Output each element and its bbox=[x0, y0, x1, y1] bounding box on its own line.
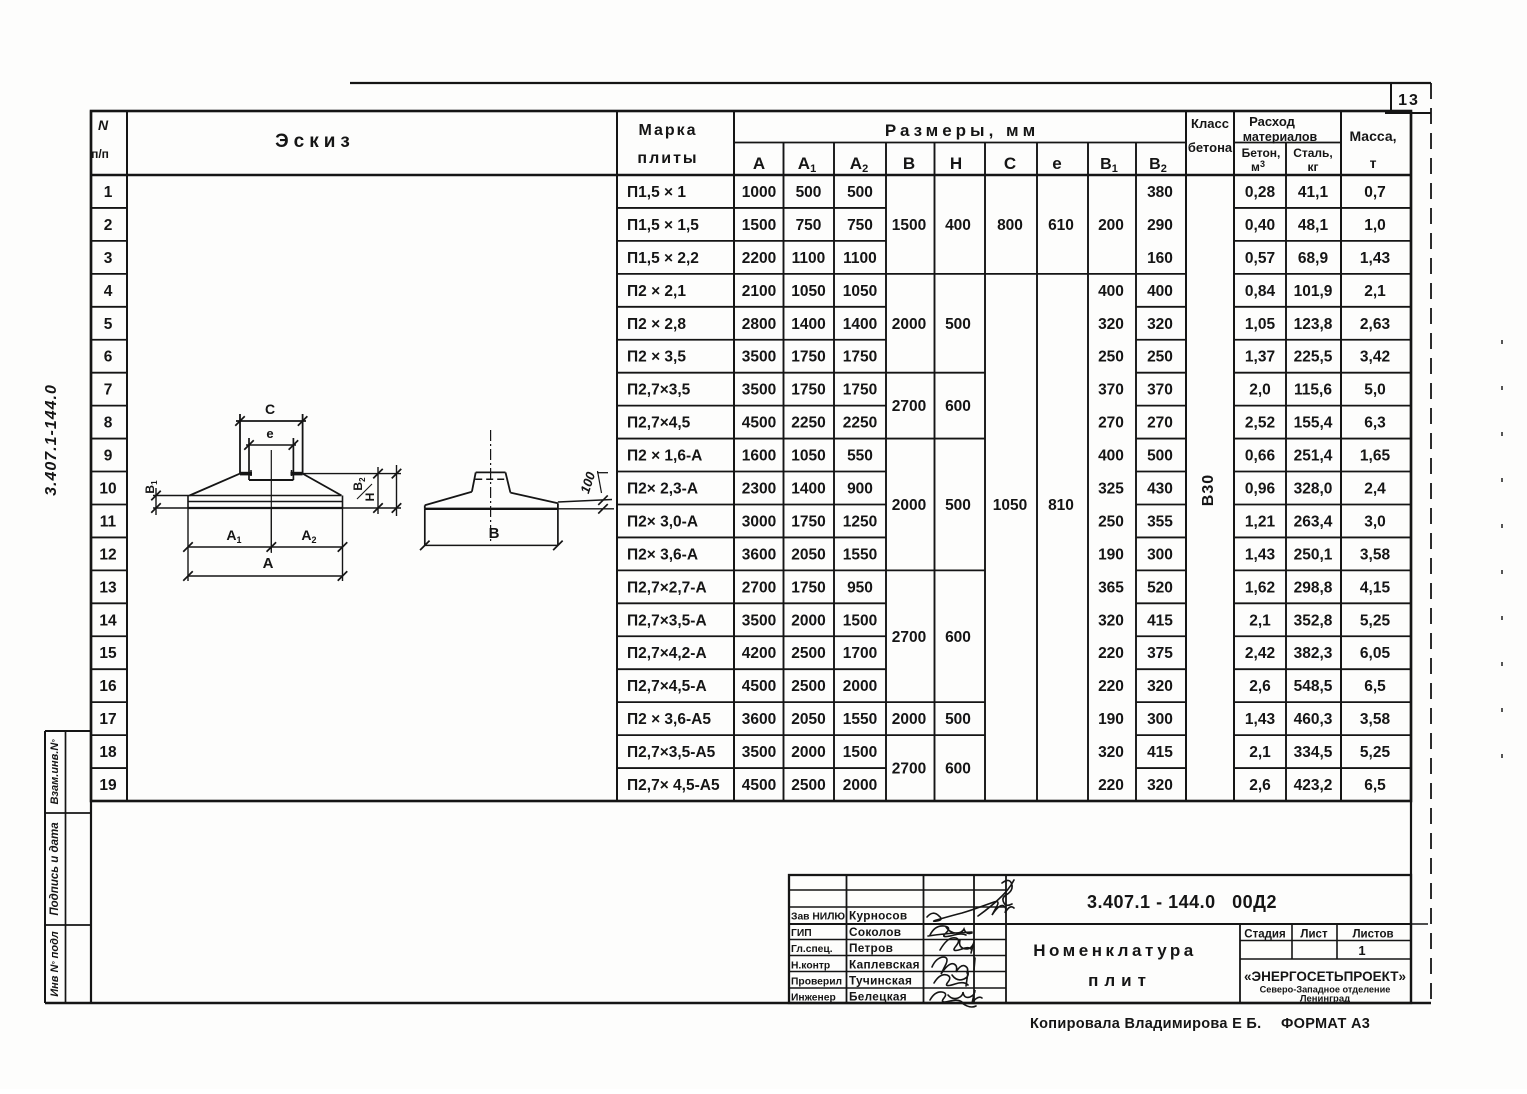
svg-text:П1,5 × 2,2: П1,5 × 2,2 bbox=[627, 250, 699, 267]
svg-text:225,5: 225,5 bbox=[1294, 349, 1333, 366]
svg-text:«ЭНЕРГОСЕТЬПРОЕКТ»: «ЭНЕРГОСЕТЬПРОЕКТ» bbox=[1244, 969, 1406, 984]
svg-text:е: е bbox=[266, 426, 273, 441]
svg-text:2000: 2000 bbox=[843, 777, 877, 794]
svg-text:370: 370 bbox=[1147, 382, 1173, 399]
svg-text:3,42: 3,42 bbox=[1360, 349, 1390, 366]
svg-text:365: 365 bbox=[1098, 579, 1124, 596]
svg-text:3500: 3500 bbox=[742, 612, 776, 629]
svg-text:ФОРМАТ А3: ФОРМАТ А3 bbox=[1281, 1016, 1370, 1032]
svg-text:220: 220 bbox=[1098, 645, 1124, 662]
svg-text:Инв N° подл: Инв N° подл bbox=[49, 931, 61, 997]
svg-text:400: 400 bbox=[1098, 448, 1124, 465]
svg-text:1,62: 1,62 bbox=[1245, 579, 1275, 596]
svg-text:материалов: материалов bbox=[1243, 130, 1318, 144]
svg-text:5,25: 5,25 bbox=[1360, 612, 1391, 629]
svg-text:6,05: 6,05 bbox=[1360, 645, 1391, 662]
svg-text:7: 7 bbox=[104, 382, 113, 399]
svg-text:П2,7×4,2-А: П2,7×4,2-А bbox=[627, 645, 707, 662]
svg-text:300: 300 bbox=[1147, 711, 1173, 728]
svg-text:13: 13 bbox=[99, 579, 117, 596]
svg-text:2000: 2000 bbox=[843, 678, 877, 695]
svg-text:320: 320 bbox=[1147, 678, 1173, 695]
svg-text:2250: 2250 bbox=[843, 415, 877, 432]
svg-text:плиты: плиты bbox=[637, 150, 698, 167]
svg-text:Номенклатура: Номенклатура bbox=[1033, 941, 1197, 960]
svg-text:610: 610 bbox=[1048, 217, 1074, 234]
svg-text:1100: 1100 bbox=[843, 250, 877, 267]
svg-text:С: С bbox=[1004, 154, 1016, 173]
svg-text:3000: 3000 bbox=[742, 513, 776, 530]
svg-text:1750: 1750 bbox=[791, 349, 825, 366]
svg-text:2,4: 2,4 bbox=[1364, 481, 1386, 498]
svg-text:1500: 1500 bbox=[843, 612, 877, 629]
svg-text:4200: 4200 bbox=[742, 645, 776, 662]
svg-text:550: 550 bbox=[847, 448, 873, 465]
svg-text:3500: 3500 bbox=[742, 382, 776, 399]
svg-text:2,6: 2,6 bbox=[1249, 777, 1271, 794]
svg-text:4,15: 4,15 bbox=[1360, 579, 1391, 596]
svg-text:П2× 3,6-А: П2× 3,6-А bbox=[627, 546, 698, 563]
svg-text:С: С bbox=[265, 401, 275, 417]
svg-text:0,7: 0,7 bbox=[1364, 184, 1386, 201]
svg-text:П2,7×2,7-А: П2,7×2,7-А bbox=[627, 579, 707, 596]
svg-text:250: 250 bbox=[1147, 349, 1173, 366]
svg-text:1750: 1750 bbox=[843, 382, 877, 399]
svg-text:1050: 1050 bbox=[791, 448, 825, 465]
svg-text:500: 500 bbox=[945, 497, 971, 514]
svg-text:2000: 2000 bbox=[892, 316, 926, 333]
svg-text:1050: 1050 bbox=[791, 283, 825, 300]
svg-text:300: 300 bbox=[1147, 546, 1173, 563]
svg-text:В: В bbox=[489, 525, 500, 542]
svg-text:500: 500 bbox=[796, 184, 822, 201]
svg-text:2,1: 2,1 bbox=[1249, 744, 1271, 761]
svg-text:2: 2 bbox=[104, 217, 113, 234]
svg-text:1250: 1250 bbox=[843, 513, 877, 530]
svg-text:Курносов: Курносов bbox=[849, 909, 907, 923]
svg-text:1550: 1550 bbox=[843, 711, 877, 728]
svg-text:4500: 4500 bbox=[742, 415, 776, 432]
svg-text:3,58: 3,58 bbox=[1360, 711, 1391, 728]
svg-text:2050: 2050 bbox=[791, 711, 825, 728]
svg-text:2,6: 2,6 bbox=[1249, 678, 1271, 695]
svg-text:Стадия: Стадия bbox=[1244, 929, 1285, 941]
svg-text:4: 4 bbox=[104, 283, 113, 300]
svg-text:16: 16 bbox=[99, 678, 117, 695]
svg-text:Бетон,: Бетон, bbox=[1242, 146, 1281, 160]
svg-text:е: е bbox=[1052, 154, 1061, 173]
svg-text:0,40: 0,40 bbox=[1245, 217, 1275, 234]
svg-text:352,8: 352,8 bbox=[1294, 612, 1333, 629]
svg-text:2250: 2250 bbox=[791, 415, 825, 432]
svg-text:1750: 1750 bbox=[791, 579, 825, 596]
svg-text:П2,7×3,5-А: П2,7×3,5-А bbox=[627, 612, 707, 629]
svg-text:115,6: 115,6 bbox=[1294, 382, 1332, 399]
svg-text:101,9: 101,9 bbox=[1294, 283, 1333, 300]
svg-text:N: N bbox=[98, 117, 109, 133]
svg-text:Размеры, мм: Размеры, мм bbox=[885, 121, 1039, 140]
svg-text:Листов: Листов bbox=[1352, 929, 1393, 941]
svg-text:Зав НИЛЮ: Зав НИЛЮ bbox=[791, 912, 845, 923]
svg-text:220: 220 bbox=[1098, 678, 1124, 695]
svg-text:123,8: 123,8 bbox=[1294, 316, 1333, 333]
svg-text:320: 320 bbox=[1147, 316, 1173, 333]
svg-text:415: 415 bbox=[1147, 612, 1173, 629]
svg-text:270: 270 bbox=[1147, 415, 1173, 432]
svg-text:423,2: 423,2 bbox=[1294, 777, 1333, 794]
svg-text:П2,7×4,5-А: П2,7×4,5-А bbox=[627, 678, 707, 695]
svg-text:900: 900 bbox=[847, 481, 873, 498]
svg-text:370: 370 bbox=[1098, 382, 1124, 399]
svg-text:Эскиз: Эскиз bbox=[275, 131, 355, 152]
svg-text:263,4: 263,4 bbox=[1294, 513, 1333, 530]
svg-text:П2 × 1,6-А: П2 × 1,6-А bbox=[627, 448, 702, 465]
svg-text:Класс: Класс bbox=[1191, 116, 1229, 131]
svg-text:1400: 1400 bbox=[843, 316, 877, 333]
svg-text:2300: 2300 bbox=[742, 481, 776, 498]
svg-text:2,42: 2,42 bbox=[1245, 645, 1275, 662]
svg-text:3,0: 3,0 bbox=[1364, 513, 1386, 530]
svg-text:375: 375 bbox=[1147, 645, 1173, 662]
svg-text:1100: 1100 bbox=[792, 250, 826, 267]
svg-text:2700: 2700 bbox=[892, 761, 926, 778]
svg-text:2,1: 2,1 bbox=[1249, 612, 1271, 629]
svg-text:4500: 4500 bbox=[742, 678, 776, 695]
svg-text:155,4: 155,4 bbox=[1294, 415, 1333, 432]
svg-text:0,96: 0,96 bbox=[1245, 481, 1276, 498]
svg-text:750: 750 bbox=[847, 217, 873, 234]
svg-text:298,8: 298,8 bbox=[1294, 579, 1333, 596]
svg-text:2050: 2050 bbox=[791, 546, 825, 563]
svg-text:2000: 2000 bbox=[892, 497, 926, 514]
svg-text:Н: Н bbox=[363, 493, 377, 502]
svg-text:А: А bbox=[753, 154, 765, 173]
svg-text:2,63: 2,63 bbox=[1360, 316, 1391, 333]
svg-text:14: 14 bbox=[99, 612, 117, 629]
svg-text:6,3: 6,3 bbox=[1364, 415, 1386, 432]
svg-text:500: 500 bbox=[847, 184, 873, 201]
svg-text:3500: 3500 bbox=[742, 744, 776, 761]
svg-text:520: 520 bbox=[1147, 579, 1173, 596]
svg-text:3.407.1 - 144.0 00Д2: 3.407.1 - 144.0 00Д2 bbox=[1087, 892, 1277, 912]
svg-text:1000: 1000 bbox=[742, 184, 776, 201]
svg-text:325: 325 bbox=[1098, 481, 1124, 498]
svg-text:Лист: Лист bbox=[1300, 929, 1328, 941]
svg-text:2700: 2700 bbox=[892, 629, 926, 646]
svg-text:1050: 1050 bbox=[843, 283, 877, 300]
svg-text:270: 270 bbox=[1098, 415, 1124, 432]
svg-text:810: 810 bbox=[1048, 497, 1074, 514]
svg-text:9: 9 bbox=[104, 448, 113, 465]
svg-text:1500: 1500 bbox=[843, 744, 877, 761]
svg-text:1: 1 bbox=[104, 184, 113, 201]
svg-text:1050: 1050 bbox=[993, 497, 1027, 514]
svg-text:290: 290 bbox=[1147, 217, 1173, 234]
svg-text:1,0: 1,0 bbox=[1364, 217, 1386, 234]
svg-text:Копировала Владимирова Е Б.: Копировала Владимирова Е Б. bbox=[1030, 1016, 1261, 1032]
svg-text:15: 15 bbox=[99, 645, 117, 662]
svg-text:П2× 2,3-А: П2× 2,3-А bbox=[627, 481, 698, 498]
svg-text:Подпись и дата: Подпись и дата bbox=[49, 822, 61, 916]
svg-text:320: 320 bbox=[1147, 777, 1173, 794]
svg-text:А: А bbox=[263, 555, 274, 572]
svg-text:П2 × 2,8: П2 × 2,8 bbox=[627, 316, 686, 333]
svg-text:П2,7×3,5-А5: П2,7×3,5-А5 bbox=[627, 744, 716, 761]
svg-text:18: 18 bbox=[99, 744, 117, 761]
svg-text:400: 400 bbox=[945, 217, 971, 234]
svg-text:750: 750 bbox=[796, 217, 822, 234]
svg-text:250: 250 bbox=[1098, 349, 1124, 366]
svg-text:2000: 2000 bbox=[791, 612, 825, 629]
svg-text:1,43: 1,43 bbox=[1360, 250, 1391, 267]
svg-text:415: 415 bbox=[1147, 744, 1173, 761]
svg-text:1400: 1400 bbox=[791, 316, 825, 333]
svg-text:1500: 1500 bbox=[742, 217, 776, 234]
svg-text:Расход: Расход bbox=[1249, 114, 1295, 129]
svg-text:0,84: 0,84 bbox=[1245, 283, 1276, 300]
svg-text:5: 5 bbox=[104, 316, 113, 333]
svg-text:220: 220 bbox=[1098, 777, 1124, 794]
svg-text:600: 600 bbox=[945, 629, 971, 646]
svg-text:П2,7× 4,5-А5: П2,7× 4,5-А5 bbox=[627, 777, 720, 794]
svg-text:6,5: 6,5 bbox=[1364, 678, 1386, 695]
svg-text:1,05: 1,05 bbox=[1245, 316, 1276, 333]
svg-text:2500: 2500 bbox=[791, 678, 825, 695]
svg-text:3,58: 3,58 bbox=[1360, 546, 1391, 563]
svg-text:Гл.спец.: Гл.спец. bbox=[791, 944, 833, 955]
svg-text:1,21: 1,21 bbox=[1245, 513, 1276, 530]
svg-text:Взам.инв.N°: Взам.инв.N° bbox=[49, 739, 61, 805]
svg-text:382,3: 382,3 bbox=[1294, 645, 1333, 662]
svg-text:400: 400 bbox=[1098, 283, 1124, 300]
svg-text:Проверил: Проверил bbox=[791, 977, 842, 988]
svg-text:Инженер: Инженер bbox=[791, 993, 836, 1004]
svg-text:П2,7×4,5: П2,7×4,5 bbox=[627, 415, 691, 432]
svg-text:400: 400 bbox=[1147, 283, 1173, 300]
svg-text:1,43: 1,43 bbox=[1245, 546, 1276, 563]
svg-text:3600: 3600 bbox=[742, 711, 776, 728]
svg-text:355: 355 bbox=[1147, 513, 1173, 530]
svg-text:П2 × 2,1: П2 × 2,1 bbox=[627, 283, 686, 300]
svg-text:1550: 1550 bbox=[843, 546, 877, 563]
svg-text:13: 13 bbox=[1398, 92, 1420, 109]
svg-text:500: 500 bbox=[945, 711, 971, 728]
svg-text:2500: 2500 bbox=[791, 777, 825, 794]
svg-text:3: 3 bbox=[104, 250, 113, 267]
svg-text:Н.контр: Н.контр bbox=[791, 960, 830, 971]
svg-text:250,1: 250,1 bbox=[1294, 546, 1333, 563]
svg-text:430: 430 bbox=[1147, 481, 1173, 498]
svg-text:800: 800 bbox=[997, 217, 1023, 234]
svg-text:Ленинград: Ленинград bbox=[1300, 994, 1350, 1005]
svg-text:2,52: 2,52 bbox=[1245, 415, 1275, 432]
svg-text:Н: Н bbox=[950, 154, 962, 173]
svg-text:бетона: бетона bbox=[1188, 140, 1233, 155]
svg-text:плит: плит bbox=[1088, 971, 1152, 990]
svg-text:8: 8 bbox=[104, 415, 113, 432]
svg-text:600: 600 bbox=[945, 761, 971, 778]
svg-text:12: 12 bbox=[99, 546, 116, 563]
svg-text:3.407.1-144.0: 3.407.1-144.0 bbox=[43, 384, 60, 496]
svg-text:1: 1 bbox=[1358, 943, 1365, 958]
svg-text:2000: 2000 bbox=[791, 744, 825, 761]
svg-text:6,5: 6,5 bbox=[1364, 777, 1386, 794]
svg-text:2,0: 2,0 bbox=[1249, 382, 1271, 399]
svg-text:1,37: 1,37 bbox=[1245, 349, 1275, 366]
svg-text:251,4: 251,4 bbox=[1294, 448, 1333, 465]
svg-text:Соколов: Соколов bbox=[849, 925, 901, 939]
svg-text:1,43: 1,43 bbox=[1245, 711, 1276, 728]
svg-text:1,65: 1,65 bbox=[1360, 448, 1391, 465]
svg-text:ГИП: ГИП bbox=[791, 928, 812, 939]
svg-text:Сталь,: Сталь, bbox=[1293, 146, 1333, 160]
svg-text:19: 19 bbox=[99, 777, 117, 794]
svg-text:0,66: 0,66 bbox=[1245, 448, 1276, 465]
svg-text:190: 190 bbox=[1098, 711, 1124, 728]
svg-text:68,9: 68,9 bbox=[1298, 250, 1329, 267]
svg-text:320: 320 bbox=[1098, 316, 1124, 333]
svg-text:Марка: Марка bbox=[638, 122, 697, 139]
svg-text:2700: 2700 bbox=[892, 398, 926, 415]
svg-text:2100: 2100 bbox=[742, 283, 776, 300]
svg-text:17: 17 bbox=[99, 711, 116, 728]
svg-text:П2 × 3,6-А5: П2 × 3,6-А5 bbox=[627, 711, 711, 728]
svg-text:П2× 3,0-А: П2× 3,0-А bbox=[627, 513, 698, 530]
svg-text:1750: 1750 bbox=[791, 513, 825, 530]
svg-text:п/п: п/п bbox=[91, 147, 109, 161]
svg-text:Белецкая: Белецкая bbox=[849, 990, 907, 1004]
svg-text:5,25: 5,25 bbox=[1360, 744, 1391, 761]
svg-text:2,1: 2,1 bbox=[1364, 283, 1386, 300]
svg-text:В: В bbox=[903, 154, 915, 173]
svg-text:Масса,: Масса, bbox=[1349, 128, 1396, 144]
svg-text:1500: 1500 bbox=[892, 217, 926, 234]
svg-text:2700: 2700 bbox=[742, 579, 776, 596]
svg-text:41,1: 41,1 bbox=[1298, 184, 1329, 201]
svg-text:В30: В30 bbox=[1200, 474, 1217, 506]
svg-text:0,57: 0,57 bbox=[1245, 250, 1275, 267]
svg-text:6: 6 bbox=[104, 349, 113, 366]
svg-text:4500: 4500 bbox=[742, 777, 776, 794]
svg-text:П1,5 × 1,5: П1,5 × 1,5 bbox=[627, 217, 699, 234]
svg-text:48,1: 48,1 bbox=[1298, 217, 1329, 234]
svg-text:320: 320 bbox=[1098, 744, 1124, 761]
svg-text:2200: 2200 bbox=[742, 250, 776, 267]
svg-text:П2 × 3,5: П2 × 3,5 bbox=[627, 349, 686, 366]
svg-text:Тучинская: Тучинская bbox=[849, 974, 912, 988]
svg-text:11: 11 bbox=[100, 513, 117, 530]
svg-text:950: 950 bbox=[847, 579, 873, 596]
svg-text:1750: 1750 bbox=[843, 349, 877, 366]
svg-text:5,0: 5,0 bbox=[1364, 382, 1386, 399]
svg-text:Каплевская: Каплевская bbox=[849, 957, 920, 971]
svg-text:1700: 1700 bbox=[843, 645, 877, 662]
svg-text:190: 190 bbox=[1098, 546, 1124, 563]
svg-text:т: т bbox=[1370, 155, 1377, 171]
svg-text:460,3: 460,3 bbox=[1294, 711, 1333, 728]
svg-text:600: 600 bbox=[945, 398, 971, 415]
svg-text:548,5: 548,5 bbox=[1294, 678, 1333, 695]
svg-text:328,0: 328,0 bbox=[1294, 481, 1333, 498]
svg-text:1400: 1400 bbox=[791, 481, 825, 498]
svg-text:3500: 3500 bbox=[742, 349, 776, 366]
svg-text:500: 500 bbox=[1147, 448, 1173, 465]
svg-text:Петров: Петров bbox=[849, 941, 893, 955]
svg-text:1600: 1600 bbox=[742, 448, 776, 465]
svg-text:3600: 3600 bbox=[742, 546, 776, 563]
svg-text:500: 500 bbox=[945, 316, 971, 333]
svg-text:кг: кг bbox=[1307, 160, 1318, 174]
svg-text:334,5: 334,5 bbox=[1294, 744, 1333, 761]
svg-text:П1,5 × 1: П1,5 × 1 bbox=[627, 184, 686, 201]
svg-text:П2,7×3,5: П2,7×3,5 bbox=[627, 382, 691, 399]
svg-text:2000: 2000 bbox=[892, 711, 926, 728]
svg-text:250: 250 bbox=[1098, 513, 1124, 530]
svg-text:2800: 2800 bbox=[742, 316, 776, 333]
svg-text:1750: 1750 bbox=[791, 382, 825, 399]
svg-text:160: 160 bbox=[1147, 250, 1173, 267]
svg-text:0,28: 0,28 bbox=[1245, 184, 1276, 201]
svg-text:320: 320 bbox=[1098, 612, 1124, 629]
svg-text:2500: 2500 bbox=[791, 645, 825, 662]
svg-text:200: 200 bbox=[1098, 217, 1124, 234]
svg-text:380: 380 bbox=[1147, 184, 1173, 201]
svg-text:10: 10 bbox=[99, 481, 116, 498]
